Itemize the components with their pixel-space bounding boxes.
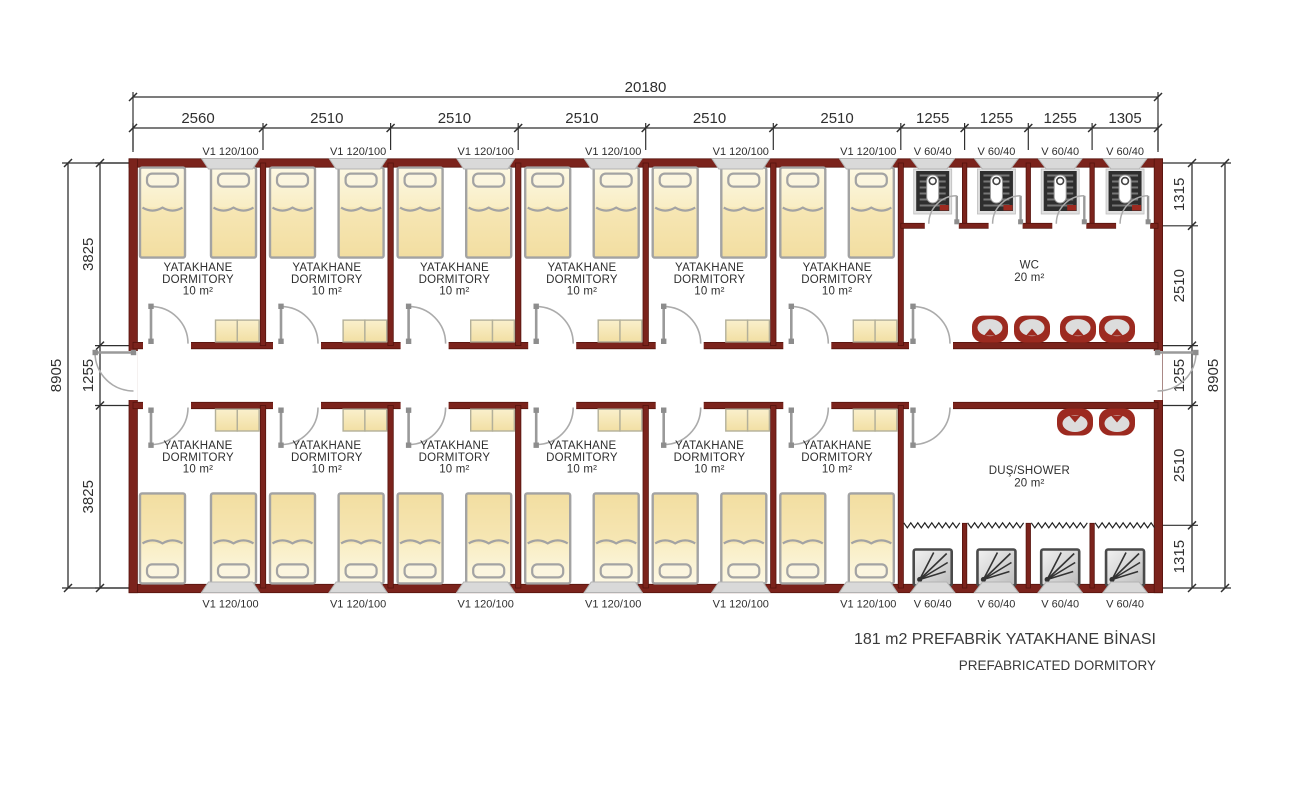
wall-partition-wc-stall-7: [962, 163, 966, 228]
room-label-dorm-top-0-line1: YATAKHANE: [164, 262, 233, 274]
nightstand: [726, 409, 748, 431]
nightstand: [343, 320, 365, 342]
door-hinge: [1082, 219, 1087, 224]
door-swing-arc: [281, 307, 318, 344]
door-hinge: [534, 339, 539, 344]
bed-blanket: [272, 208, 314, 256]
door-hinge: [406, 339, 411, 344]
room-label-dorm-bottom-0-line2: DORMITORY: [162, 452, 234, 464]
dim-label-top-seg-5: 2510: [820, 110, 853, 127]
shower-curtain: [1031, 523, 1087, 528]
window: [457, 582, 515, 593]
door-handle: [148, 443, 153, 448]
dim-label-right-seg-1: 2510: [1171, 269, 1188, 302]
bed-blanket: [527, 495, 569, 543]
dim-label-top-seg-7: 1255: [980, 110, 1013, 127]
dim-label-left-seg-0: 3825: [80, 238, 97, 271]
nightstand: [620, 409, 642, 431]
door-swing-arc: [664, 408, 701, 445]
door-hinge: [1146, 219, 1151, 224]
room-label-wc-line2: 20 m²: [1014, 272, 1044, 284]
door-hinge: [534, 408, 539, 413]
dim-label-right-total: 8905: [1205, 359, 1222, 392]
bed-blanket: [850, 495, 892, 543]
room-label-dorm-top-3-line1: YATAKHANE: [547, 262, 616, 274]
room-label-dorm-bottom-3-line2: DORMITORY: [546, 452, 618, 464]
door-handle: [661, 304, 666, 309]
room-label-dorm-top-2-line2: DORMITORY: [419, 274, 491, 286]
door-hinge: [278, 339, 283, 344]
wall-divider-shower: [898, 406, 903, 589]
room-label-dorm-top-5-line1: YATAKHANE: [803, 262, 872, 274]
door-hinge: [661, 339, 666, 344]
door-opening: [1116, 221, 1150, 230]
door-swing-arc: [151, 307, 188, 344]
bed-blanket: [399, 495, 441, 543]
dim-label-top-seg-8: 1255: [1044, 110, 1077, 127]
window-label-bottom-8: V 60/40: [1041, 599, 1079, 611]
bed-pillow: [660, 564, 691, 577]
window: [1038, 159, 1082, 170]
door-handle: [534, 304, 539, 309]
room-label-dorm-top-5-line3: 10 m²: [822, 286, 852, 298]
room-label-dorm-bottom-2-line2: DORMITORY: [419, 452, 491, 464]
wall-partition-shower-stall-8: [1026, 523, 1030, 588]
room-label-dorm-bottom-1-line3: 10 m²: [312, 464, 342, 476]
dim-label-left-seg-2: 3825: [80, 480, 97, 513]
room-label-dorm-bottom-4-line1: YATAKHANE: [675, 440, 744, 452]
window: [202, 159, 260, 170]
door-handle: [910, 443, 915, 448]
wall-partition-dorm-top-5: [771, 163, 776, 346]
bed-blanket: [527, 208, 569, 256]
room-label-dorm-bottom-1-line1: YATAKHANE: [292, 440, 361, 452]
bed-blanket: [142, 208, 184, 256]
window-label-bottom-9: V 60/40: [1106, 599, 1144, 611]
wall-partition-wc-stall-9: [1090, 163, 1094, 228]
window-label-top-6: V 60/40: [914, 146, 952, 158]
window: [584, 159, 642, 170]
door-swing-arc: [536, 307, 573, 344]
room-label-shower-line1: DUŞ/SHOWER: [989, 465, 1070, 477]
door-hinge: [406, 408, 411, 413]
nightstand: [493, 320, 515, 342]
bed-blanket: [340, 495, 382, 543]
room-label-dorm-bottom-4-line3: 10 m²: [694, 464, 724, 476]
toilet-flush: [1067, 205, 1076, 211]
room-label-dorm-top-4-line3: 10 m²: [694, 286, 724, 298]
dim-label-top-seg-6: 1255: [916, 110, 949, 127]
floor-plan-canvas: 2018025602510251025102510251012551255125…: [0, 0, 1300, 792]
room-label-dorm-bottom-3-line3: 10 m²: [567, 464, 597, 476]
door-swing-arc: [151, 408, 188, 445]
door-handle: [148, 304, 153, 309]
bed-pillow: [346, 564, 377, 577]
room-label-dorm-bottom-2-line1: YATAKHANE: [420, 440, 489, 452]
dim-label-top-seg-3: 2510: [565, 110, 598, 127]
door-hinge: [789, 408, 794, 413]
window-label-bottom-5: V1 120/100: [840, 599, 896, 611]
room-label-dorm-top-4-line1: YATAKHANE: [675, 262, 744, 274]
wall-partition-shower-stall-9: [1090, 523, 1094, 588]
window-label-bottom-7: V 60/40: [977, 599, 1015, 611]
dim-label-left-total: 8905: [48, 359, 65, 392]
door-handle: [534, 443, 539, 448]
wall-partition-shower-stall-7: [962, 523, 966, 588]
window: [839, 159, 897, 170]
bed-pillow: [532, 174, 563, 187]
nightstand: [493, 409, 515, 431]
dim-label-top-seg-1: 2510: [310, 110, 343, 127]
door-swing-arc: [791, 307, 828, 344]
room-label-wc-line1: WC: [1020, 260, 1040, 272]
window: [329, 159, 387, 170]
window: [1103, 159, 1147, 170]
window: [1038, 582, 1082, 593]
wall-partition-dorm-top-4: [643, 163, 648, 346]
bed-blanket: [654, 495, 696, 543]
toilet-flush: [1003, 205, 1012, 211]
window: [712, 159, 770, 170]
door-hinge: [1018, 219, 1023, 224]
window-label-bottom-3: V1 120/100: [585, 599, 641, 611]
toilet-drain: [1057, 178, 1064, 185]
room-label-dorm-top-0-line3: 10 m²: [183, 286, 213, 298]
window-label-top-3: V1 120/100: [585, 146, 641, 158]
bed-pillow: [728, 564, 759, 577]
window: [457, 159, 515, 170]
bed-blanket: [723, 208, 765, 256]
door-hinge: [148, 339, 153, 344]
bed-blanket: [213, 208, 255, 256]
room-label-dorm-bottom-5-line1: YATAKHANE: [803, 440, 872, 452]
bed-blanket: [782, 208, 824, 256]
door-swing-arc: [409, 307, 446, 344]
shower-curtain: [904, 523, 960, 528]
wall-partition-dorm-bottom-5: [771, 406, 776, 589]
room-label-dorm-top-1-line2: DORMITORY: [291, 274, 363, 286]
bed-pillow: [147, 564, 178, 577]
door-opening: [1052, 221, 1086, 230]
bed-pillow: [473, 564, 504, 577]
door-handle: [278, 443, 283, 448]
door-handle: [789, 304, 794, 309]
window: [329, 582, 387, 593]
bed-pillow: [473, 174, 504, 187]
shower-drain: [1045, 577, 1050, 582]
nightstand: [365, 320, 387, 342]
door-swing-arc: [913, 307, 950, 344]
room-label-dorm-bottom-3-line1: YATAKHANE: [547, 440, 616, 452]
bed-pillow: [277, 564, 308, 577]
door-handle: [661, 443, 666, 448]
bed-blanket: [723, 495, 765, 543]
window: [839, 582, 897, 593]
dim-label-right-seg-3: 2510: [1171, 449, 1188, 482]
door-handle: [93, 350, 98, 355]
bed-pillow: [728, 174, 759, 187]
window: [712, 582, 770, 593]
room-label-dorm-top-3-line3: 10 m²: [567, 286, 597, 298]
door-hinge: [910, 339, 915, 344]
bed-pillow: [405, 564, 436, 577]
door-handle: [789, 443, 794, 448]
door-opening: [925, 221, 959, 230]
dim-label-top-seg-0: 2560: [181, 110, 214, 127]
wall-divider-wc: [898, 163, 903, 346]
bed-blanket: [850, 208, 892, 256]
room-label-dorm-top-3-line2: DORMITORY: [546, 274, 618, 286]
room-label-dorm-top-1-line3: 10 m²: [312, 286, 342, 298]
door-opening: [989, 221, 1023, 230]
door-hinge: [131, 350, 136, 355]
nightstand: [620, 320, 642, 342]
bed-pillow: [346, 174, 377, 187]
door-opening: [1153, 351, 1162, 400]
door-hinge: [661, 408, 666, 413]
wall-partition-dorm-bottom-3: [516, 406, 521, 589]
toilet-flush: [1132, 205, 1141, 211]
door-handle: [1193, 350, 1198, 355]
window: [584, 582, 642, 593]
door-swing-arc: [281, 408, 318, 445]
door-hinge: [954, 219, 959, 224]
shower-drain: [1109, 577, 1114, 582]
window-label-bottom-6: V 60/40: [914, 599, 952, 611]
dim-label-top-seg-2: 2510: [438, 110, 471, 127]
bed-pillow: [787, 174, 818, 187]
drawing-title-line1: 181 m2 PREFABRİK YATAKHANE BİNASI: [854, 629, 1156, 648]
door-swing-arc: [913, 408, 950, 445]
nightstand: [875, 320, 897, 342]
window-label-top-2: V1 120/100: [458, 146, 514, 158]
nightstand: [343, 409, 365, 431]
toilet-flush: [940, 205, 949, 211]
bed-blanket: [213, 495, 255, 543]
bed-pillow: [660, 174, 691, 187]
bed-blanket: [782, 495, 824, 543]
door-swing-arc: [95, 353, 134, 392]
nightstand: [875, 409, 897, 431]
room-label-dorm-top-2-line1: YATAKHANE: [420, 262, 489, 274]
bed-blanket: [340, 208, 382, 256]
bed-blanket: [468, 208, 510, 256]
room-label-dorm-top-1-line1: YATAKHANE: [292, 262, 361, 274]
shower-drain: [981, 577, 986, 582]
nightstand: [365, 409, 387, 431]
room-label-dorm-bottom-0-line1: YATAKHANE: [164, 440, 233, 452]
door-swing-arc: [536, 408, 573, 445]
window: [974, 159, 1018, 170]
nightstand: [598, 320, 620, 342]
bed-pillow: [787, 564, 818, 577]
room-label-dorm-bottom-2-line3: 10 m²: [439, 464, 469, 476]
window: [911, 159, 955, 170]
nightstand: [726, 320, 748, 342]
bed-pillow: [856, 174, 887, 187]
room-label-dorm-bottom-0-line3: 10 m²: [183, 464, 213, 476]
bed-pillow: [856, 564, 887, 577]
drawing-title-line2: PREFABRICATED DORMITORY: [959, 658, 1156, 673]
window-label-top-5: V1 120/100: [840, 146, 896, 158]
dim-label-left-seg-1: 1255: [80, 359, 97, 392]
room-label-dorm-bottom-5-line3: 10 m²: [822, 464, 852, 476]
wall-partition-dorm-top-3: [516, 163, 521, 346]
floor-plan: 2018025602510251025102510251012551255125…: [0, 0, 1300, 792]
bed-blanket: [272, 495, 314, 543]
wall-partition-dorm-bottom-1: [260, 406, 265, 589]
window-label-bottom-1: V1 120/100: [330, 599, 386, 611]
room-label-dorm-top-5-line2: DORMITORY: [801, 274, 873, 286]
window: [1103, 582, 1147, 593]
door-hinge: [278, 408, 283, 413]
door-handle: [278, 304, 283, 309]
nightstand: [237, 320, 259, 342]
dim-label-top-seg-9: 1305: [1108, 110, 1141, 127]
wall-partition-dorm-top-1: [260, 163, 265, 346]
nightstand: [471, 409, 493, 431]
room-label-dorm-top-2-line3: 10 m²: [439, 286, 469, 298]
window: [911, 582, 955, 593]
window-label-top-7: V 60/40: [977, 146, 1015, 158]
nightstand: [598, 409, 620, 431]
room-label-dorm-bottom-5-line2: DORMITORY: [801, 452, 873, 464]
door-swing-arc: [409, 408, 446, 445]
bed-blanket: [399, 208, 441, 256]
shower-curtain: [1095, 523, 1155, 528]
window-label-top-4: V1 120/100: [713, 146, 769, 158]
window-label-bottom-0: V1 120/100: [202, 599, 258, 611]
wall-partition-dorm-top-2: [388, 163, 393, 346]
bed-blanket: [468, 495, 510, 543]
door-hinge: [1155, 350, 1160, 355]
room-label-dorm-top-0-line2: DORMITORY: [162, 274, 234, 286]
window-label-top-8: V 60/40: [1041, 146, 1079, 158]
shower-drain: [917, 577, 922, 582]
bed-pillow: [147, 174, 178, 187]
dim-label-right-seg-0: 1315: [1171, 178, 1188, 211]
wall-partition-dorm-bottom-4: [643, 406, 648, 589]
shower-curtain: [968, 523, 1024, 528]
door-handle: [910, 304, 915, 309]
nightstand: [853, 320, 875, 342]
nightstand: [216, 409, 238, 431]
door-hinge: [148, 408, 153, 413]
bed-pillow: [218, 564, 249, 577]
bed-pillow: [532, 564, 563, 577]
toilet-drain: [993, 178, 1000, 185]
bed-pillow: [405, 174, 436, 187]
room-label-dorm-bottom-4-line2: DORMITORY: [674, 452, 746, 464]
door-swing-arc: [664, 307, 701, 344]
nightstand: [853, 409, 875, 431]
door-hinge: [910, 408, 915, 413]
window-label-bottom-4: V1 120/100: [713, 599, 769, 611]
bed-pillow: [601, 564, 632, 577]
bed-pillow: [601, 174, 632, 187]
door-hinge: [789, 339, 794, 344]
nightstand: [216, 320, 238, 342]
bed-blanket: [654, 208, 696, 256]
door-opening: [129, 351, 138, 400]
door-handle: [406, 443, 411, 448]
room-label-shower-line2: 20 m²: [1014, 478, 1044, 490]
bed-pillow: [218, 174, 249, 187]
window-label-top-1: V1 120/100: [330, 146, 386, 158]
window: [202, 582, 260, 593]
bed-pillow: [277, 174, 308, 187]
dim-label-top-seg-4: 2510: [693, 110, 726, 127]
window-label-bottom-2: V1 120/100: [458, 599, 514, 611]
bed-blanket: [595, 208, 637, 256]
nightstand: [748, 409, 770, 431]
bed-blanket: [142, 495, 184, 543]
window-label-top-0: V1 120/100: [202, 146, 258, 158]
dim-label-right-seg-4: 1315: [1171, 540, 1188, 573]
window-label-top-9: V 60/40: [1106, 146, 1144, 158]
nightstand: [471, 320, 493, 342]
room-label-dorm-top-4-line2: DORMITORY: [674, 274, 746, 286]
window: [974, 582, 1018, 593]
dim-label-top-total: 20180: [625, 79, 667, 96]
door-handle: [406, 304, 411, 309]
bed-blanket: [595, 495, 637, 543]
toilet-drain: [929, 178, 936, 185]
wall-partition-dorm-bottom-2: [388, 406, 393, 589]
wall-partition-wc-stall-8: [1026, 163, 1030, 228]
door-swing-arc: [791, 408, 828, 445]
nightstand: [748, 320, 770, 342]
room-label-dorm-bottom-1-line2: DORMITORY: [291, 452, 363, 464]
nightstand: [237, 409, 259, 431]
toilet-drain: [1122, 178, 1129, 185]
